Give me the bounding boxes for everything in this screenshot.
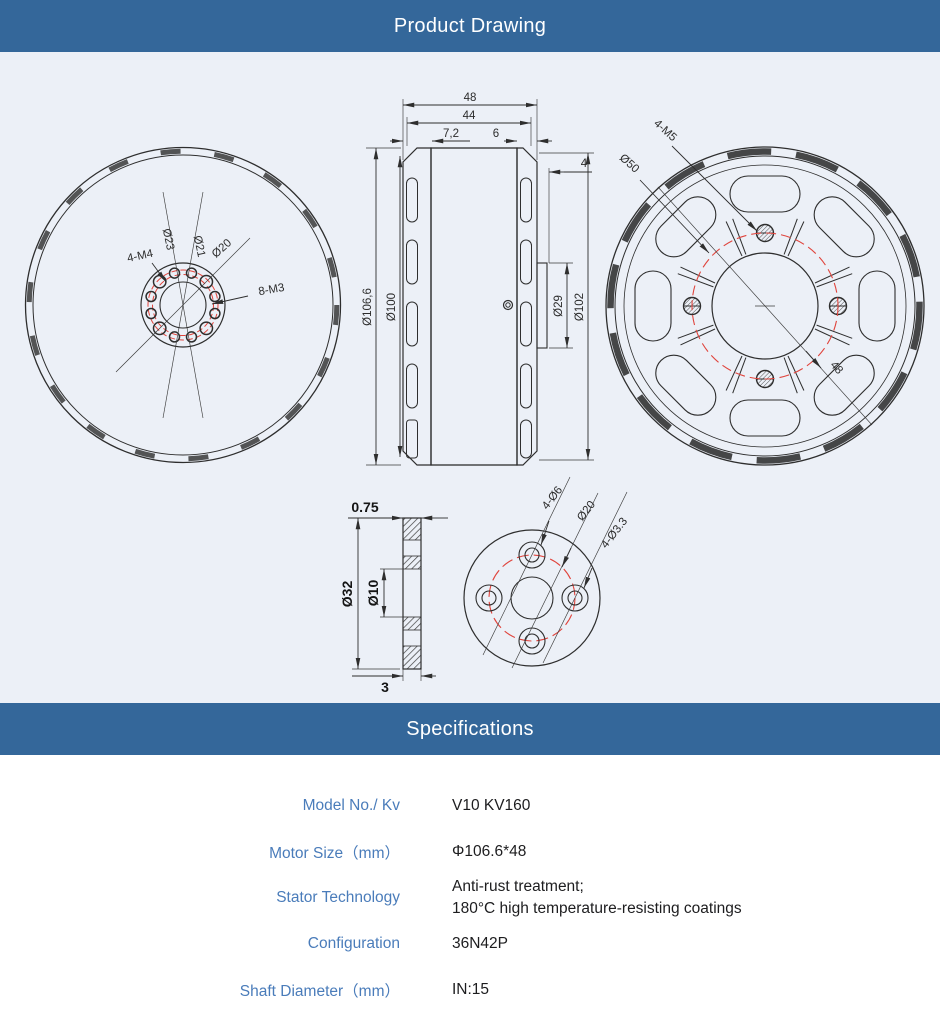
dim-label-d32: Ø32 [339, 581, 355, 608]
dim-label-6: 6 [493, 128, 499, 140]
spec-row-configuration: Configuration 36N42P [0, 921, 940, 967]
dim-label-44: 44 [463, 110, 476, 122]
spec-value: V10 KV160 [452, 795, 530, 817]
dim-label-4: 4 [581, 158, 588, 170]
section-view: 0.75 Ø32 Ø10 3 [339, 499, 448, 695]
front-view: 4-M4 Ø23 Ø21 Ø20 8-M3 [26, 148, 341, 463]
hatched-sections [403, 518, 421, 669]
dim-label-d50: Ø50 [617, 152, 641, 175]
spec-label: Motor Size（mm） [0, 841, 400, 863]
drawing-area: 4-M4 Ø23 Ø21 Ø20 8-M3 [0, 52, 940, 703]
dim-label-d21: Ø21 [191, 234, 207, 258]
dim-label-flange-d20: Ø20 [575, 499, 598, 524]
dim-label-48: 48 [464, 92, 477, 104]
product-page: Product Drawing [0, 0, 940, 1014]
spec-row-shaft-diameter: Shaft Diameter（mm） IN:15 [0, 967, 940, 1013]
dim-label-0-75: 0.75 [351, 499, 378, 515]
dim-label-d29: Ø29 [553, 295, 565, 317]
side-view: 48 44 7,2 6 4 Ø106,6 Ø100 [362, 92, 594, 465]
spec-row-motor-size: Motor Size（mm） Φ106.6*48 [0, 829, 940, 875]
dim-label-d102: Ø102 [574, 293, 586, 321]
dim-label-4-d6: 4-Ø6 [540, 484, 565, 512]
spec-row-model: Model No./ Kv V10 KV160 [0, 783, 940, 829]
spec-value: 36N42P [452, 933, 508, 955]
dim-label-4-d3-3: 4-Ø3.3 [599, 516, 630, 551]
shaft-boss [537, 263, 547, 348]
specifications-title: Specifications [406, 718, 534, 741]
spec-row-stator-technology: Stator Technology Anti-rust treatment; 1… [0, 875, 940, 921]
product-drawing-header: Product Drawing [0, 0, 940, 52]
dim-label-d20: Ø20 [210, 237, 234, 260]
dim-label-8-m3: 8-M3 [258, 282, 286, 298]
dim-label-d23: Ø23 [160, 227, 176, 251]
dim-label-4-m5: 4-M5 [651, 118, 679, 144]
spec-label: Stator Technology [0, 889, 400, 907]
specifications-header: Specifications [0, 703, 940, 755]
product-drawing-title: Product Drawing [394, 15, 546, 38]
spec-label: Configuration [0, 935, 400, 953]
flange-view: 4-Ø6 Ø20 4-Ø3.3 [464, 477, 630, 668]
dim-label-d100: Ø100 [386, 293, 398, 321]
flange-holes [476, 542, 588, 654]
dim-label-d10: Ø10 [365, 580, 381, 607]
set-screw [504, 301, 513, 310]
back-view: 48 4-M5 Ø50 [606, 118, 924, 465]
left-flange-slots [407, 178, 418, 458]
right-flange-slots [521, 178, 532, 458]
technical-drawing-svg: 4-M4 Ø23 Ø21 Ø20 8-M3 [0, 52, 940, 703]
spec-value: Anti-rust treatment; 180°C high temperat… [452, 876, 742, 920]
spec-value: IN:15 [452, 979, 489, 1001]
spec-value: Φ106.6*48 [452, 841, 526, 863]
dim-label-d106-6: Ø106,6 [362, 288, 374, 326]
spec-label: Model No./ Kv [0, 797, 400, 815]
specifications-table: Model No./ Kv V10 KV160 Motor Size（mm） Φ… [0, 755, 940, 1014]
spec-label: Shaft Diameter（mm） [0, 979, 400, 1001]
dim-label-7-2: 7,2 [443, 128, 459, 140]
dim-label-3: 3 [381, 679, 389, 695]
dim-label-4-m4: 4-M4 [126, 248, 155, 265]
